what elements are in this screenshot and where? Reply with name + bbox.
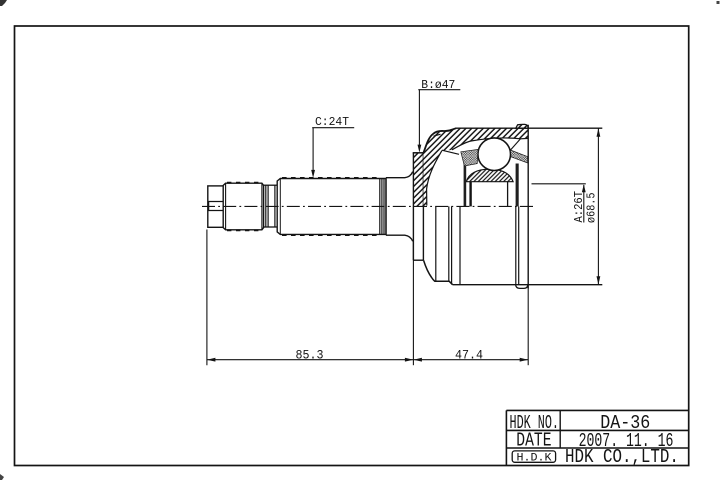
- svg-text:47.4: 47.4: [455, 348, 483, 363]
- svg-text:C:24T: C:24T: [315, 115, 349, 129]
- svg-text:HDK CO.,LTD.: HDK CO.,LTD.: [565, 446, 679, 468]
- svg-text:ø68.5: ø68.5: [585, 193, 599, 224]
- svg-text:DATE: DATE: [516, 430, 551, 452]
- svg-text:85.3: 85.3: [296, 348, 324, 363]
- svg-text:H.D.K: H.D.K: [517, 453, 552, 465]
